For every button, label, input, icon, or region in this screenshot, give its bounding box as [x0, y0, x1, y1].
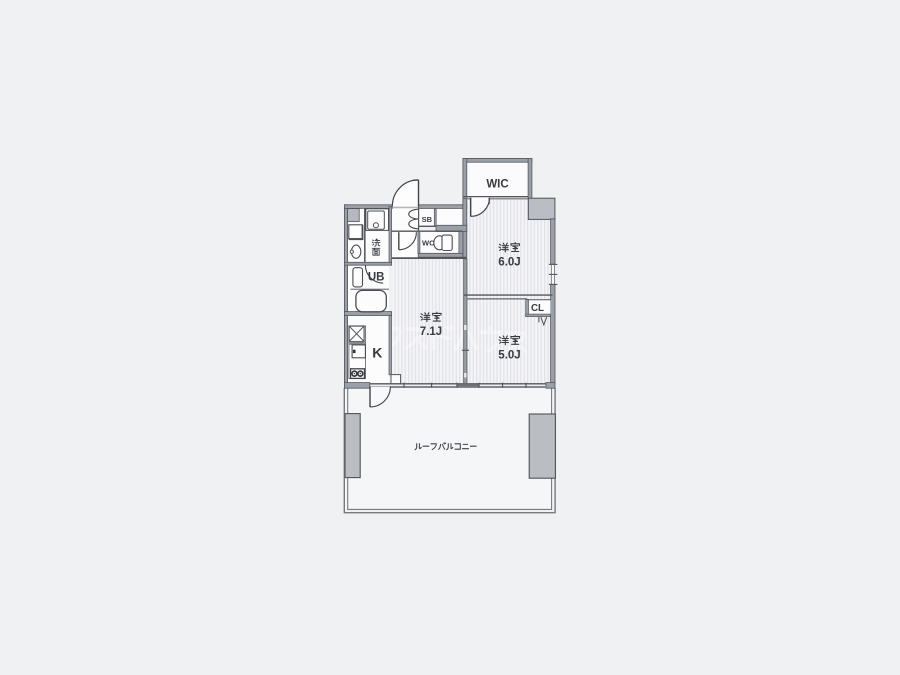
svg-text:WC: WC	[422, 239, 435, 248]
svg-text:CL: CL	[531, 303, 544, 314]
svg-text:WIC: WIC	[486, 178, 508, 190]
svg-text:5.0J: 5.0J	[498, 349, 520, 361]
svg-text:6.0J: 6.0J	[498, 257, 520, 269]
svg-text:SB: SB	[422, 215, 433, 224]
svg-text:K: K	[372, 344, 382, 360]
svg-text:7.1J: 7.1J	[420, 326, 442, 338]
svg-text:UB: UB	[368, 271, 385, 283]
